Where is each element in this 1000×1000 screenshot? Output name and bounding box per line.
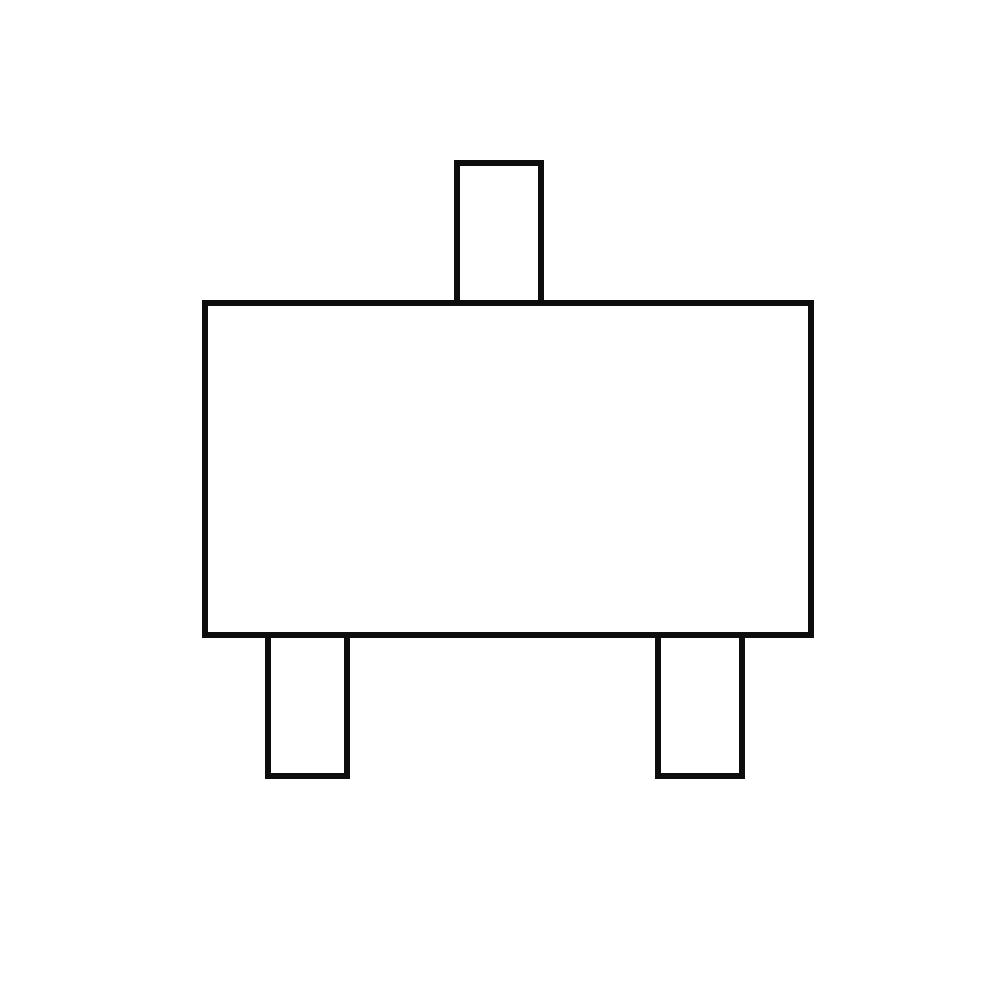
package-body [205, 303, 811, 635]
page-background [0, 0, 1000, 1000]
bottom-right-lead [658, 635, 742, 776]
bottom-left-lead [268, 635, 347, 776]
sot23-package-diagram [0, 0, 1000, 1000]
top-lead [457, 163, 541, 303]
